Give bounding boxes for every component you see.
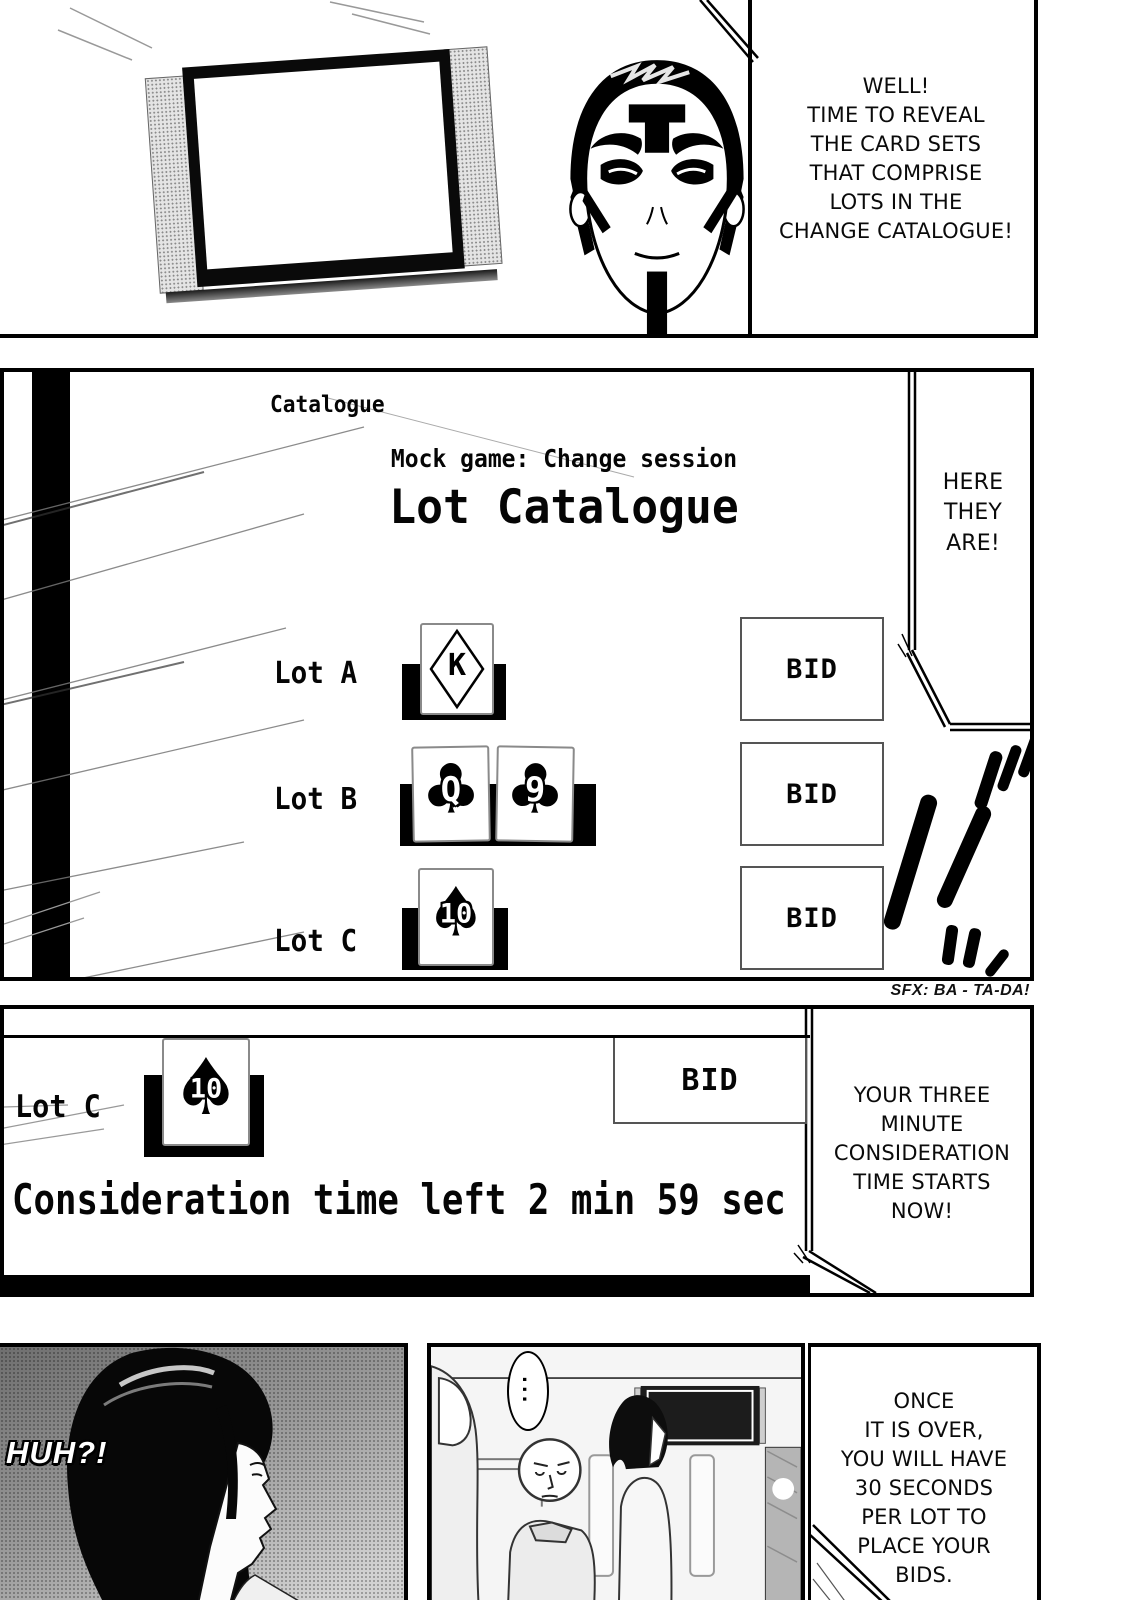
- room-scene-illustration: [431, 1347, 801, 1600]
- manga-page: WELL! TIME TO REVEAL THE CARD SETS THAT …: [0, 0, 1124, 1600]
- ellipsis-text: ...: [519, 1376, 537, 1406]
- playing-card-10-spade: ♠ 10: [162, 1038, 250, 1146]
- card-rank: 10: [190, 1073, 223, 1104]
- catalogue-subtitle: Mock game: Change session: [325, 444, 803, 473]
- huh-exclamation-text: HUH?!: [6, 1435, 107, 1471]
- bid-button-lot-a[interactable]: BID: [740, 617, 884, 721]
- tv-frame: [182, 49, 465, 287]
- card-rank: K: [448, 648, 466, 683]
- bald-man-head: [519, 1439, 580, 1500]
- bid-button-lot-b[interactable]: BID: [740, 742, 884, 846]
- woman-profile-illustration: [0, 1347, 404, 1600]
- playing-card-9-club: ♣ 9: [495, 745, 575, 842]
- bid-button-lot-c[interactable]: BID: [740, 866, 884, 970]
- lot-a-label: Lot A: [274, 656, 357, 691]
- panel-consideration-timer: Lot C ♠ 10 BID Consideration time left 2…: [0, 1005, 1034, 1297]
- ellipsis-speech-bubble: ...: [507, 1351, 549, 1431]
- card-rank: 10: [440, 898, 473, 929]
- tv-screen: [194, 62, 453, 270]
- door: [765, 1447, 801, 1600]
- tv-screen-blank: [144, 46, 504, 305]
- playing-card-q-club: ♣ Q: [411, 745, 491, 842]
- host-face-illustration: [540, 46, 772, 338]
- lot-row-a: Lot A K BID: [4, 586, 1030, 720]
- host-speech-text: WELL! TIME TO REVEAL THE CARD SETS THAT …: [758, 72, 1034, 246]
- catalogue-corner-label: Catalogue: [270, 392, 385, 418]
- consideration-timer-text: Consideration time left 2 min 59 sec: [12, 1175, 786, 1224]
- lot-c-label: Lot C: [274, 924, 357, 959]
- lot-row-b: Lot B ♣ Q ♣ 9 BID: [4, 712, 1030, 846]
- lot-c-label: Lot C: [15, 1089, 101, 1125]
- door-light: [772, 1478, 794, 1500]
- timer-announcement-speech: YOUR THREE MINUTE CONSIDERATION TIME STA…: [822, 1081, 1022, 1226]
- playing-card-10-spade: ♠ 10: [418, 868, 494, 966]
- panel-rules-speech: ONCE IT IS OVER, YOU WILL HAVE 30 SECOND…: [808, 1343, 1041, 1600]
- lot-b-label: Lot B: [274, 782, 357, 817]
- sfx-caption: SFX: BA - TA-DA!: [730, 982, 1030, 1000]
- panel-host-intro: WELL! TIME TO REVEAL THE CARD SETS THAT …: [0, 0, 1038, 338]
- lot-row-c: Lot C ♠ 10 BID: [4, 836, 1030, 970]
- rules-speech-text: ONCE IT IS OVER, YOU WILL HAVE 30 SECOND…: [821, 1387, 1027, 1590]
- here-they-are-speech: HERE THEY ARE!: [917, 468, 1029, 559]
- panel-room-scene: ...: [427, 1343, 805, 1600]
- card-rank: Q: [440, 770, 461, 810]
- catalogue-title: Lot Catalogue: [317, 480, 811, 535]
- bid-button[interactable]: BID: [613, 1038, 807, 1124]
- playing-card-k-diamond: K: [420, 623, 494, 715]
- panel-lot-catalogue: Catalogue Mock game: Change session Lot …: [0, 368, 1034, 981]
- panel-woman-reaction: HUH?!: [0, 1343, 408, 1600]
- card-rank: 9: [524, 770, 545, 810]
- column-divider-line: [801, 1343, 803, 1600]
- panel-divider: [748, 0, 752, 334]
- screen-bottom-edge: [4, 1275, 810, 1293]
